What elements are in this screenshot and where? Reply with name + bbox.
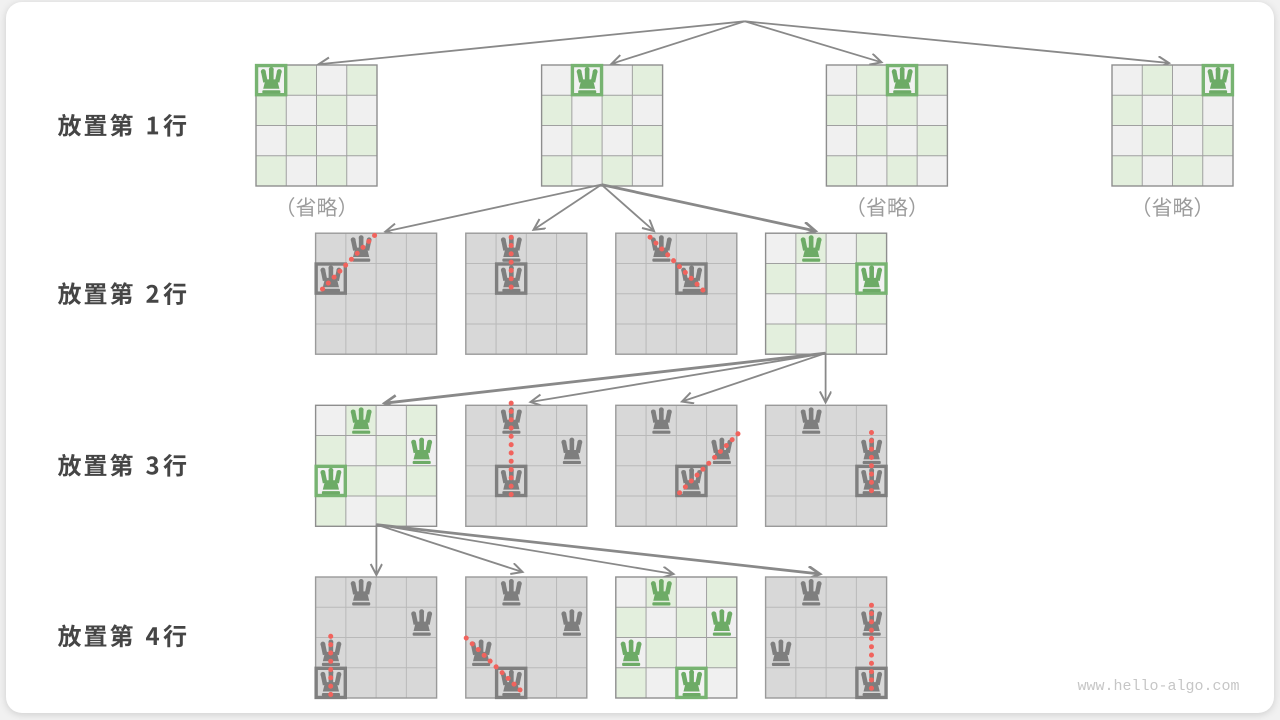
svg-text:www.hello-algo.com: www.hello-algo.com: [1077, 678, 1239, 695]
